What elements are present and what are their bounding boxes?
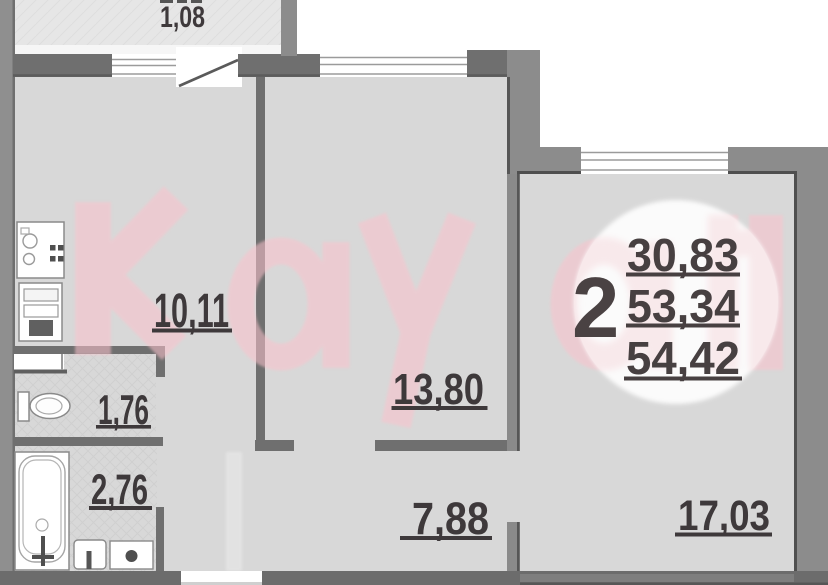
svg-text:1,08: 1,08 <box>160 1 205 34</box>
svg-text:2: 2 <box>572 261 619 356</box>
svg-text:54,42: 54,42 <box>626 332 740 384</box>
